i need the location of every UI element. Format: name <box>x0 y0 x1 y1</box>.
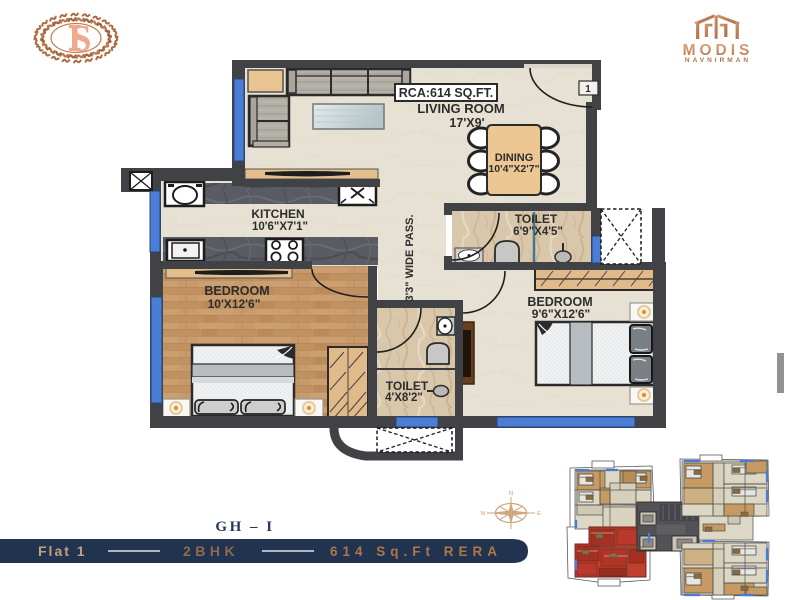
svg-text:GH – I: GH – I <box>215 519 274 535</box>
svg-text:2BHK: 2BHK <box>183 543 239 559</box>
svg-text:NAVNIRMAN: NAVNIRMAN <box>685 57 751 64</box>
svg-text:TOILET: TOILET <box>515 212 558 226</box>
svg-text:6'9"X4'5": 6'9"X4'5" <box>513 226 563 238</box>
svg-text:N: N <box>509 491 513 497</box>
svg-text:E: E <box>537 511 541 517</box>
svg-text:10'X12'6": 10'X12'6" <box>208 297 261 311</box>
svg-text:614 Sq.Ft RERA: 614 Sq.Ft RERA <box>330 544 502 559</box>
svg-text:4'X8'2": 4'X8'2" <box>385 392 423 404</box>
svg-text:W: W <box>480 511 486 517</box>
svg-text:17'X9': 17'X9' <box>449 116 484 130</box>
svg-text:3'3" WIDE PASS.: 3'3" WIDE PASS. <box>404 214 416 301</box>
svg-text:Flat 1: Flat 1 <box>38 543 87 559</box>
svg-text:KITCHEN: KITCHEN <box>251 207 304 221</box>
svg-text:1: 1 <box>585 84 591 95</box>
svg-text:10'6"X7'1": 10'6"X7'1" <box>252 221 308 233</box>
svg-text:BEDROOM: BEDROOM <box>204 284 269 298</box>
svg-text:10'4"X2'7": 10'4"X2'7" <box>488 163 539 175</box>
svg-text:9'6"X12'6": 9'6"X12'6" <box>532 307 590 321</box>
svg-text:LIVING ROOM: LIVING ROOM <box>417 101 504 116</box>
svg-text:RCA:614 SQ.FT.: RCA:614 SQ.FT. <box>399 86 493 100</box>
svg-text:TOILET: TOILET <box>386 379 429 393</box>
